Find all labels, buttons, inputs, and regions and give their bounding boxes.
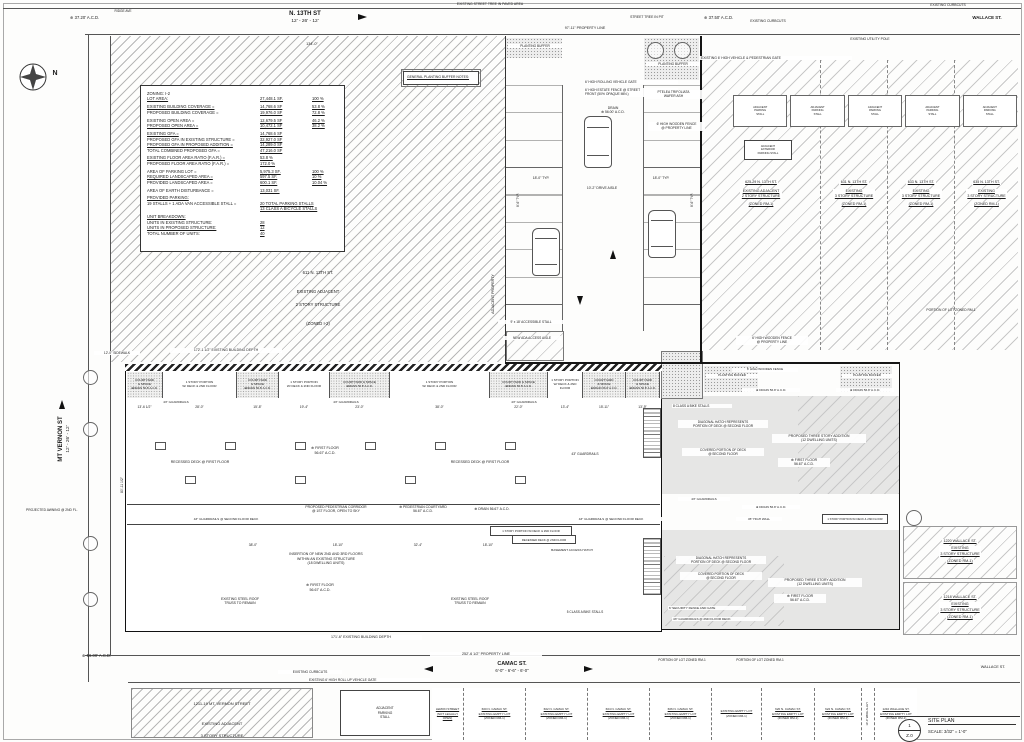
corridor-dim-38: 38'-0" <box>235 543 271 547</box>
band-cell-drain: ⊕DRAIN 56.8' A.C.D. <box>591 387 618 390</box>
wooden-fence-label-south: 6' HIGH WOODEN FENCE @ PROPERTY LINE <box>736 336 808 345</box>
adjacent-stall-label: ADJACENT PARKING STALL <box>753 106 767 117</box>
curbcuts-label-top-mid: EXISTING CURBCUTS <box>738 19 798 23</box>
band-cell: 1 STORY PORTION W/ DECK & 2ND FLOOR 19'-… <box>279 372 330 398</box>
basement-hatch-label: BASEMENT ACCESS HATCH <box>540 548 604 552</box>
zoning-row-label: LOT AREA: <box>147 96 260 101</box>
diag-hatch-label-lower: DIAGONAL HATCH REPRESENTS PORTION OF DEC… <box>676 556 766 564</box>
zoning-data-table: ZONING: I-2 LOT AREA: 27,448.1 SF. 100 %… <box>140 85 345 252</box>
dim-97-property-line: 97'-11" PROPERTY LINE <box>540 26 630 31</box>
zoning-row-label: PROPOSED BUILDING COVERAGE = <box>147 110 260 115</box>
tree-icon <box>83 592 98 607</box>
camac-arrow-right-icon <box>584 666 593 672</box>
adjacent-611-line2: 2 STORY STRUCTURE <box>296 302 341 307</box>
adjacent-parking-stall: ADJACENT PARKING STALL <box>848 95 902 127</box>
zoning-table-row: AREA OF EARTH DISTURBANCE = 13,031 SF. <box>147 188 338 193</box>
recessed-deck-first-label-2: RECESSED DECK @ FIRST FLOOR <box>445 460 515 465</box>
zoning-row-value: 40 <box>260 231 312 236</box>
line <box>3 8 1021 9</box>
zoning-row-value: 47,216.0 SF <box>260 148 312 153</box>
awning-label: PROJECTED AWNING @ 2ND FL. <box>26 508 82 512</box>
dim-86-typ-east: 8'-6" TYP. <box>690 185 694 215</box>
car-detail <box>535 238 557 239</box>
camac-lots-row: LEMON STREET (NOT LEGALLY OPEN) 600 N. C… <box>432 688 917 740</box>
band-cell-label: 1 STORY PORTION W/ DECK & 2ND FLOOR <box>287 381 321 389</box>
band-cell-label: 1 STORY PORTION W/ DECK & 2ND FLOOR <box>422 381 456 389</box>
guardrails-2nd-label: 43" GUARDRAILS @ 2ND FLOOR DECK <box>672 617 764 621</box>
zoning-table-row: TOTAL NUMBER OF UNITS: 40 <box>147 231 338 236</box>
building-top-band: COURTYARD & SPACE ⊕DRAIN 56.8' A.C.D. 13… <box>127 372 660 398</box>
planting-buffer-label-e2: PLANTING BUFFER <box>842 374 892 378</box>
band-cell-dim: 13'-6 1/2" <box>127 405 162 409</box>
adjacent-611-zone: (ZONED I-2) <box>306 321 330 326</box>
camac-lot-cell: 622 N. CAMAC ST. EXISTING EMPTY LOT (ZON… <box>814 688 861 740</box>
line <box>88 34 89 682</box>
camac-lot-cell: LEMON STREET (NOT LEGALLY OPEN) <box>432 688 463 740</box>
deck-hatch-lower <box>664 556 784 626</box>
north-lot-address: 631 N. 13TH ST. <box>839 180 869 185</box>
mt-vernon-block-line1: EXISTING ADJACENT <box>202 721 243 726</box>
band-cell-dim: 22'-0" <box>490 405 547 409</box>
proposed-addition-label-lower: PROPOSED THREE STORY ADDITION (12 DWELLI… <box>768 578 862 587</box>
corridor-drain-label: ⊕ DRAIN 56.67' A.C.D. <box>462 507 522 511</box>
zoning-table-row: LOT AREA: 27,448.1 SF. 100 % <box>147 96 338 101</box>
camac-lot-cell: 604 N. CAMAC ST. EXISTING EMPTY LOT (ZON… <box>587 688 649 740</box>
drain-label-e1: ⊕ DRAIN 56.8' A.C.D. <box>742 388 800 392</box>
dim-drive-aisle: 10'-2" DRIVE AISLE <box>574 186 630 190</box>
camac-lot-zone: (ZONED RM-1) <box>828 716 849 721</box>
recessed-2nd-box: RECESSED DECK @ 2ND FLOOR <box>512 535 576 544</box>
pedestrian-courtyard-label: ⊕ PEDESTRIAN COURTYARD 56.67' A.C.D. <box>388 505 458 514</box>
zoning-row-value: 13 CLASS A BICYCLE STALLS <box>260 206 312 211</box>
tree-icon <box>83 536 98 551</box>
camac-lot-cell: 606 N. CAMAC ST. EXISTING EMPTY LOT (ZON… <box>649 688 711 740</box>
camac-lot-zone: (ZONED RM-1) <box>726 714 747 719</box>
adjacent-stall-label: ADJACENT PARKING STALL <box>983 106 997 117</box>
bike8-label: 8 CLASS A BIKE STALLS <box>672 404 732 408</box>
zoning-row-value: 13,031 SF. <box>260 188 312 193</box>
dim-172-building-depth: 172'-1 1/2" EXISTING BUILDING DEPTH <box>170 348 282 353</box>
camac-lot-zone: (ZONED RM-1) <box>484 716 505 721</box>
adjacent-property-label: ADJACENT PROPERTY <box>491 266 496 322</box>
car-detail <box>535 264 557 265</box>
zoning-row-label: AREA OF EARTH DISTURBANCE = <box>147 188 260 193</box>
wallace-building-description: EXISTING 3 STORY STRUCTURE <box>939 546 981 557</box>
camac-arrow-left-icon <box>424 666 433 672</box>
zoning-table-row: 13 CLASS A BICYCLE STALLS <box>147 206 338 211</box>
diag-hatch-label-upper: DIAGONAL HATCH REPRESENTS PORTION OF DEC… <box>678 420 768 428</box>
zoning-row-pct <box>312 148 338 153</box>
zoning-row-label: PROVIDED LANDSCAPED AREA = <box>147 180 260 185</box>
parking-stalls-west <box>506 85 563 331</box>
camac-lot-description: (NOT LEGALLY OPEN) <box>432 712 463 721</box>
dim-18-typ-west: 18'-0" TYP. <box>521 176 561 180</box>
ptelea-tree-label: PTELEA TRIFOLIATA WAFER ASH <box>645 90 702 99</box>
drawing-scale: SCALE: 3/32" = 1'-0" <box>928 729 967 734</box>
steel-truss-label-1: EXISTING STEEL ROOF TRUSS TO REMAIN <box>200 597 280 606</box>
pedestrian-gate-label: EXISTING 6' HIGH VEHICLE & PEDESTRIAN GA… <box>700 56 852 60</box>
planting-buffer-label-east: PLANTING BUFFER <box>646 62 700 66</box>
dim-134: 134'-0" <box>292 42 332 47</box>
line <box>128 682 1020 683</box>
north-arrow-right-icon <box>358 14 367 20</box>
curbcuts-label-top-right: EXISTING CURBCUTS <box>918 3 978 7</box>
zoning-row-label: PROPOSED FLOOR AREA RATIO (F.A.R.) = <box>147 161 260 166</box>
tree-icon <box>83 370 98 385</box>
adjacent-stall-label: ADJACENT PARKING STALL <box>811 106 825 117</box>
zoning-row-label <box>147 206 260 211</box>
wallace-building-zone: (ZONED RM-1) <box>946 559 974 564</box>
drain-label-e2: ⊕ DRAIN 56.8' A.C.D. <box>836 388 894 392</box>
wallace-building-zone: (ZONED RM-1) <box>946 615 974 620</box>
planting-buffer-label-e1: PLANTING BUFFER <box>706 374 758 378</box>
zoning-row-pct: 100 % <box>312 96 338 101</box>
band-cell-drain: ⊕DRAIN 56.8' A.C.D. <box>244 387 271 390</box>
drawing-reference-bubble: 1 Z.0 <box>898 719 921 742</box>
north-lot-zone: (ZONED RM-1) <box>907 202 935 207</box>
drain-label-addition: ⊕ DRAIN 56.8' A.C.D. <box>742 505 800 509</box>
band-cell-dim: 19'-4" <box>279 405 329 409</box>
planting-buffer-notes: GENERAL PLANTING BUFFER NOTES: <box>403 71 479 85</box>
guardrails-deck-label-2: 43" GUARDRAILS @ SECOND FLOOR DECK <box>560 517 662 521</box>
band-cell: 1 STORY PORTION W/ DECK & 2ND FLOOR 38'-… <box>390 372 490 398</box>
guardrails-label-addition: 43" GUARDRAILS <box>678 497 730 501</box>
car-icon <box>532 228 560 276</box>
pedestrian-corridor-label: PROPOSED PEDESTRIAN CORRIDOR @ 1ST FLOOR… <box>290 505 382 514</box>
street-tree-paved-label: EXISTING STREET TREE IN PAVED AREA <box>445 2 535 6</box>
wallace-building-address: 1218 WALLACE ST. <box>942 595 978 600</box>
band-cell-drain: ⊕DRAIN 56.8' A.C.D. <box>505 385 532 388</box>
security-fence-label: 6' SECURITY FENCE AND GATE <box>668 606 746 610</box>
band-cell: COURTYARD & SPACE ⊕DRAIN 56.8' A.C.D. 13… <box>626 372 660 398</box>
drawing-title: SITE PLAN <box>928 718 1016 725</box>
camac-lot-cell: 620 N. CAMAC ST. EXISTING EMPTY LOT (ZON… <box>761 688 814 740</box>
zoning-row-label: PROPOSED OPEN AREA = <box>147 123 260 128</box>
n13th-street-name: N. 13TH ST <box>253 11 357 19</box>
zoning-row-value: 27,448.1 SF. <box>260 96 312 101</box>
line <box>85 655 1020 656</box>
tree-icon <box>674 42 691 59</box>
skylight-box <box>185 476 196 484</box>
north-lot-address: 625-29 N. 13TH ST. <box>744 180 779 185</box>
adjacent-stall-label: ADJACENT PARKING STALL <box>868 106 882 117</box>
ada-aisle-label: NEW ADA ACCESS AISLE <box>503 336 561 340</box>
guardrails-label-2: 43" GUARDRAILS <box>320 400 372 404</box>
zoning-row-label: TOTAL NUMBER OF UNITS: <box>147 231 260 236</box>
existing-wall-band <box>125 364 662 371</box>
guardrails-label-1: 43" GUARDRAILS <box>150 400 202 404</box>
guardrails-deck-label-1: 43" GUARDRAILS @ SECOND FLOOR DECK <box>175 517 277 521</box>
wallace-buildings: 1220 WALLACE ST. EXISTING 3 STORY STRUCT… <box>903 526 1017 638</box>
recessed-deck-first-label-1: RECESSED DECK @ FIRST FLOOR <box>165 460 235 465</box>
band-cell-dim: 28'-0" <box>163 405 236 409</box>
skylight-box <box>405 476 416 484</box>
curbcuts-label-bottom: EXISTING CURBCUTS <box>278 670 342 674</box>
mt-vernon-block-label: 1211-19 MT. VERNON STREET EXISTING ADJAC… <box>141 695 303 740</box>
corridor-dim-324: 32'-4" <box>400 543 436 547</box>
adjacent-parking-stall: ADJACENT PARKING STALL <box>790 95 844 127</box>
planting-notes-title: GENERAL PLANTING BUFFER NOTES: <box>407 75 475 79</box>
north-lot-description: EXISTING 3 STORY STRUCTURE <box>833 189 874 199</box>
band-cell: COURTYARD & SPACE ⊕DRAIN 56.8' A.C.D. 15… <box>237 372 279 398</box>
sidewalk-dim-label: 12'-0" SIDEWALK <box>94 351 140 355</box>
camac-lot-zone: (ZONED RM-1) <box>670 716 691 721</box>
skylight-box <box>435 442 446 450</box>
property-line-east <box>700 36 702 362</box>
mt-vernon-block-address: 1211-19 MT. VERNON STREET <box>193 701 250 706</box>
camac-lot-zone: (ZONED RM-1) <box>546 716 567 721</box>
skylight-box <box>365 442 376 450</box>
north-lot-zone: (ZONED RM-1) <box>840 202 868 207</box>
sheet-id: Z.0 <box>899 731 920 741</box>
camac-lot-zone: (ZONED RM-1) <box>608 716 629 721</box>
corridor-dim-1810a: 18'-10" <box>320 543 356 547</box>
car-icon <box>584 116 612 168</box>
wallace-building-description: EXISTING 3 STORY STRUCTURE <box>939 602 981 613</box>
ridge-ave-label: RIDGE AVE <box>108 9 138 13</box>
adjacent-parking-stall: ADJACENT PARKING STALL <box>905 95 959 127</box>
north-lot-description: EXISTING ADJACENT 2 STORY STRUCTURE <box>740 189 781 199</box>
planting-buffer-label-west: PLANTING BUFFER <box>508 44 562 48</box>
skylight-box <box>505 442 516 450</box>
steel-truss-label-2: EXISTING STEEL ROOF TRUSS TO REMAIN <box>430 597 510 606</box>
adjacent-611-address: 611 N. 13TH ST. <box>303 270 334 275</box>
band-cell: 1 STORY PORTION W/ DECK & 2ND FLOOR 13'-… <box>548 372 583 398</box>
zoning-row-pct <box>312 231 338 236</box>
covered-deck-label-upper: COVERED PORTION OF DECK @ SECOND FLOOR <box>682 448 764 456</box>
band-cell-label: 1 STORY PORTION W/ DECK & 2ND FLOOR <box>182 381 216 389</box>
band-cell: COURTYARD & SPACE ⊕DRAIN 56.8' A.C.D. 15… <box>583 372 626 398</box>
dim-18-typ-east: 18'-0" TYP. <box>641 176 681 180</box>
drive-aisle-up-arrow-icon <box>610 250 616 259</box>
landscaped-square <box>661 351 703 399</box>
street-tree-pit-label: STREET TREE IN PIT <box>622 15 672 19</box>
covered-deck-label-lower: COVERED PORTION OF DECK @ SECOND FLOOR <box>680 572 762 580</box>
adjacent-stall-label: ADJACENT PARKING STALL <box>925 106 939 117</box>
adjacent-611-line1: EXISTING ADJACENT <box>297 289 340 294</box>
tree-icon <box>647 42 664 59</box>
band-cell-drain: ⊕DRAIN 56.8' A.C.D. <box>131 387 158 390</box>
band-cell-dim: 15'-8" <box>237 405 278 409</box>
camac-lot-address: 10'-0" WIDE ALLEY <box>866 702 870 726</box>
zoning-row-pct <box>312 161 338 166</box>
mt-vernon-street-dims: 12' - 26' - 12' <box>66 396 72 482</box>
zoning-row-label: TOTAL COMBINED PROPOSED GFA = <box>147 148 260 153</box>
zoning-row-pct <box>312 188 338 193</box>
lot-zoned-rm1-label-right: PORTION OF LOT ZONED RM-1 <box>918 308 984 312</box>
zoning-row-value: 10,472.1 SF <box>260 123 312 128</box>
line <box>85 34 1020 35</box>
skylight-box <box>225 442 236 450</box>
camac-street-name: CAMAC ST. <box>448 661 576 668</box>
guardrails-label-4: 43" GUARDRAILS <box>560 452 610 456</box>
north-lot-zone: (ZONED RM-1) <box>747 202 775 207</box>
zoning-row-pct <box>312 206 338 211</box>
utility-pole-label: EXISTING UTILITY POLE <box>838 37 902 41</box>
adjacent-stall-bottom-box: ADJACENT PARKING STALL <box>340 690 430 736</box>
site-boundary-line <box>662 629 900 630</box>
site-boundary-line <box>899 362 900 630</box>
zoning-row-value: 19,976.0 SF <box>260 110 312 115</box>
band-cell-dim: 13'-4" <box>548 405 582 409</box>
car-detail <box>587 155 609 156</box>
parking-drain-label: DRAIN ⊕ 56.00' A.C.D. <box>592 106 634 115</box>
rollup-gate-label: EXISTING 6' HIGH ROLL UP VEHICLE GATE <box>308 678 430 682</box>
north-lot-address: 633 N. 13TH ST. <box>906 180 936 185</box>
drive-aisle-down-arrow-icon <box>577 296 583 305</box>
dim-252-property-line: 252'-6 1/2" PROPERTY LINE <box>430 652 542 657</box>
exterior-parking-stall-box: ADJACENT EXTERIOR PARKING STALL <box>744 140 792 160</box>
corridor-dim-1810b: 18'-10" <box>470 543 506 547</box>
camac-lot-zone: (ZONED RM-1) <box>778 716 799 721</box>
zoning-row-pct: 72.8 % <box>312 110 338 115</box>
high-wall-label: 45" HIGH WALL <box>736 517 782 521</box>
compass-n-label: N <box>50 69 60 78</box>
zoning-row-value: 600.1 SF. <box>260 180 312 185</box>
zoning-row-pct: 10.04 % <box>312 180 338 185</box>
rolling-gate-label: 6' HIGH ROLLING VEHICLE GATE <box>584 80 678 84</box>
benchmark-acd-3720: ⊕ 37.20' A.C.D. <box>70 15 114 20</box>
dim-8011: 80'-11 1/2" <box>120 465 124 505</box>
north-lot-address: 635 N. 13TH ST. <box>972 180 1002 185</box>
band-cell-label: 1 STORY PORTION W/ DECK & 2ND FLOOR <box>548 379 582 390</box>
proposed-addition-label-upper: PROPOSED THREE STORY ADDITION (12 DWELLI… <box>772 434 866 443</box>
band-cell: COURTYARD & SPACE ⊕DRAIN 56.8' A.C.D. 22… <box>490 372 548 398</box>
benchmark-acd-5600: ⊕ 56.00' A.C.D. <box>82 653 126 658</box>
car-detail <box>651 246 673 247</box>
adjacent-611-label: 611 N. 13TH ST. EXISTING ADJACENT 2 STOR… <box>258 264 378 327</box>
line <box>127 524 660 525</box>
wallace-building-cell: 1218 WALLACE ST. EXISTING 3 STORY STRUCT… <box>903 582 1017 635</box>
north-compass-icon <box>18 62 48 92</box>
camac-lot-cell: 600 N. CAMAC ST. EXISTING EMPTY LOT (ZON… <box>463 688 525 740</box>
lot-zoned-rm1-bottom-2: PORTION OF LOT ZONED RM-1 <box>726 658 794 662</box>
wallace-building-cell: 1220 WALLACE ST. EXISTING 3 STORY STRUCT… <box>903 526 1017 579</box>
north-lot-description: EXISTING 3 STORY STRUCTURE <box>900 189 941 199</box>
stair-icon <box>643 538 661 595</box>
first-floor-label-upper: ⊕ FIRST FLOOR 56.67' A.C.D. <box>300 446 350 455</box>
band-cell: COURTYARD & SPACE ⊕DRAIN 56.8' A.C.D. 13… <box>127 372 163 398</box>
adjacent-parking-stall: ADJACENT PARKING STALL <box>733 95 787 127</box>
band-cell-drain: ⊕DRAIN 56.8' A.C.D. <box>346 385 373 388</box>
skylight-box <box>155 442 166 450</box>
zoning-table-row: TOTAL COMBINED PROPOSED GFA = 47,216.0 S… <box>147 148 338 153</box>
adjacent-stalls-row: ADJACENT PARKING STALL ADJACENT PARKING … <box>733 95 1017 127</box>
north-lot-zone: (ZONED RM-1) <box>973 202 1001 207</box>
dim-86-typ-west: 8'-6" TYP. <box>516 185 520 215</box>
insertion-label: INSERTION OF NEW 2ND AND 3RD FLOORS WITH… <box>250 552 402 566</box>
tree-icon <box>906 510 922 526</box>
first-floor-label-addition-upper: ⊕ FIRST FLOOR 56.67' A.C.D. <box>778 458 830 467</box>
dim-171-building-depth: 171'-6" EXISTING BUILDING DEPTH <box>300 635 422 640</box>
zoning-table-row: PROPOSED BUILDING COVERAGE = 19,976.0 SF… <box>147 110 338 115</box>
accessible-stall-label: 9' x 18' ACCESSIBLE STALL <box>498 320 564 324</box>
story-portion-box-east: 1 STORY PORTION W/ DECK & 2ND FLOOR <box>822 514 888 524</box>
band-cell-dim: 38'-0" <box>390 405 489 409</box>
band-cell: COURTYARD & SPACE ⊕DRAIN 56.8' A.C.D. 23… <box>330 372 390 398</box>
zoning-row-value: 172.0 % <box>260 161 312 166</box>
first-floor-label-lower: ⊕ FIRST FLOOR 56.67' A.C.D. <box>295 583 345 592</box>
camac-lot-cell: 602 N. CAMAC ST. EXISTING EMPTY LOT (ZON… <box>525 688 587 740</box>
skylight-box <box>295 476 306 484</box>
camac-lot-cell: 10'-0" WIDE ALLEY <box>861 688 874 740</box>
wallace-street-label-bottom: WALLACE ST. <box>968 665 1018 670</box>
mt-vernon-block-line2: 3 STORY STRUCTURE <box>201 733 244 738</box>
wooden-fence-label-e: 6' HIGH WOODEN FENCE <box>732 368 798 372</box>
line <box>110 36 111 656</box>
car-icon <box>648 210 676 258</box>
lot-zoned-rm1-bottom-1: PORTION OF LOT ZONED RM-1 <box>648 658 716 662</box>
car-detail <box>651 220 673 221</box>
stair-icon <box>643 408 661 458</box>
camac-lot-cell: EXISTING EMPTY LOT (ZONED RM-1) <box>711 688 761 740</box>
wooden-fence-label: 6' HIGH WOODEN FENCE @ PROPERTY LINE <box>648 122 705 131</box>
drawing-number: 1 <box>899 720 920 731</box>
wallace-building-address: 1220 WALLACE ST. <box>942 539 978 544</box>
north-lot-description: EXISTING 3 STORY STRUCTURE <box>966 189 1007 199</box>
property-line-west <box>505 36 506 362</box>
tree-icon <box>83 422 98 437</box>
n13th-street-dims: 12' - 26' - 12' <box>253 19 357 25</box>
zoning-table-row: PROVIDED LANDSCAPED AREA = 600.1 SF. 10.… <box>147 180 338 185</box>
zoning-table-row: PROPOSED FLOOR AREA RATIO (F.A.R.) = 172… <box>147 161 338 166</box>
deck-hatch-upper <box>798 396 899 494</box>
zoning-row-pct: 38.2 % <box>312 123 338 128</box>
title-block-rule <box>893 716 1020 717</box>
guardrails-label-3: 43" GUARDRAILS <box>498 400 550 404</box>
skylight-box <box>515 476 526 484</box>
site-plan-sheet: RIDGE AVE ⊕ 37.20' A.C.D. N. 13TH ST 12'… <box>0 0 1024 742</box>
adjacent-parking-stall: ADJACENT PARKING STALL <box>963 95 1017 127</box>
bike5-label: 5 CLASS A BIKE STALLS <box>556 610 614 614</box>
mt-vernon-arrow-up-icon <box>59 400 65 409</box>
band-cell-drain: ⊕DRAIN 56.8' A.C.D. <box>629 387 656 390</box>
car-detail <box>587 127 609 128</box>
band-cell-dim: 15'-11" <box>583 405 625 409</box>
camac-street-dims: 6'-0" - 6'-6" - 6'-0" <box>448 668 576 674</box>
first-floor-label-addition-lower: ⊕ FIRST FLOOR 56.67' A.C.D. <box>774 594 826 603</box>
zoning-table-row: PROPOSED OPEN AREA = 10,472.1 SF 38.2 % <box>147 123 338 128</box>
wallace-street-label-top: WALLACE ST. <box>962 15 1012 21</box>
band-cell-dim: 23'-0" <box>330 405 389 409</box>
band-cell: 1 STORY PORTION W/ DECK & 2ND FLOOR 28'-… <box>163 372 237 398</box>
